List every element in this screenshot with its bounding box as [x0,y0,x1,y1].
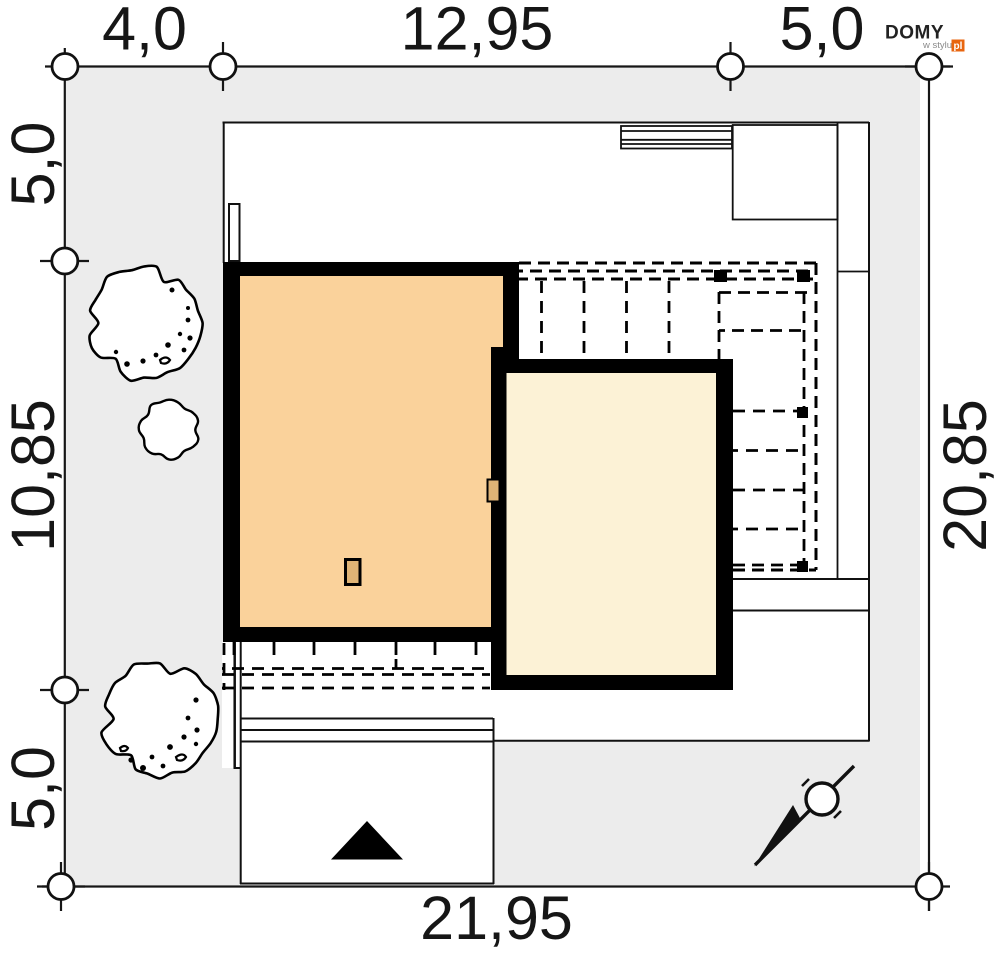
svg-text:4,0: 4,0 [102,0,187,63]
svg-text:pl: pl [954,41,963,52]
svg-text:12,95: 12,95 [401,0,554,63]
svg-text:5,0: 5,0 [780,0,865,63]
svg-text:10,85: 10,85 [0,399,67,552]
svg-text:20,85: 20,85 [931,399,995,552]
svg-text:5,0: 5,0 [0,122,67,207]
svg-text:21,95: 21,95 [420,884,573,952]
svg-text:5,0: 5,0 [0,746,67,831]
svg-text:w stylu: w stylu [922,40,952,51]
